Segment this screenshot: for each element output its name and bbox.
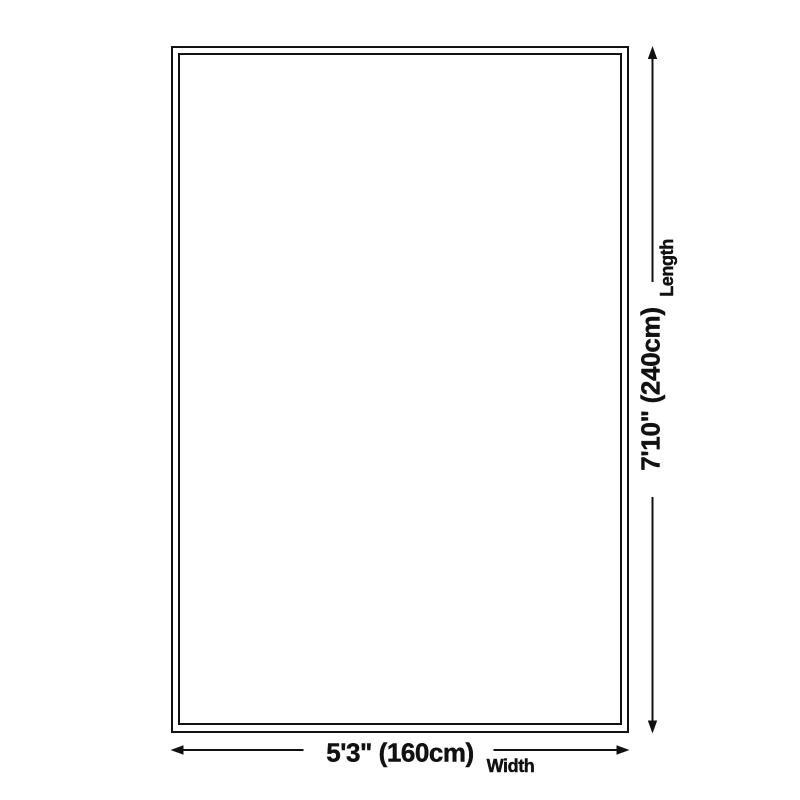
svg-text:Width: Width — [487, 756, 535, 776]
svg-text:5'3" (160cm): 5'3" (160cm) — [326, 738, 474, 768]
svg-text:7'10" (240cm): 7'10" (240cm) — [636, 307, 666, 471]
svg-text:Length: Length — [657, 239, 677, 297]
